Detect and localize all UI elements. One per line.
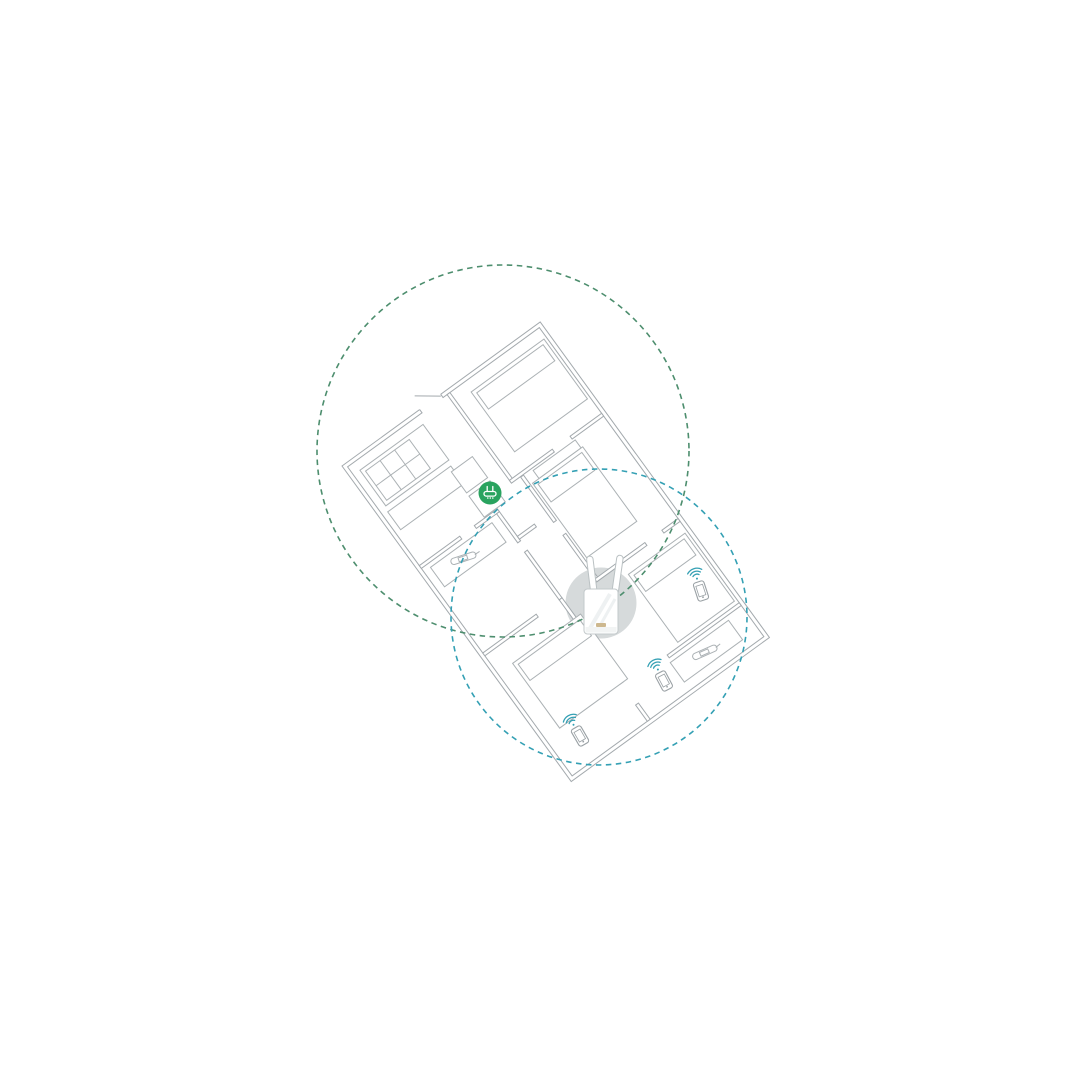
extender-bottom-strip [586,627,617,633]
wall-segment [517,524,536,539]
wifi-arc [653,664,659,668]
wifi-coverage-diagram [0,0,1080,1080]
phone-body [570,725,589,747]
wall-segment [636,703,651,721]
smartphone-icon [562,712,591,748]
floor-plan [334,311,770,782]
router-icon-led [487,497,489,499]
phone-body [655,670,674,692]
router-icon-led [492,497,494,499]
extender-logo [596,623,606,627]
wall-segment [570,413,604,439]
wifi-dot [657,668,660,671]
wall-segment [525,550,563,600]
router-icon-led [490,497,492,499]
range-extender-device [584,555,623,634]
router-icon [479,482,502,505]
wifi-coverage-illustration [0,0,1080,1080]
router-icon-background [479,482,502,505]
wifi-dot [572,723,575,726]
furniture [358,337,755,764]
